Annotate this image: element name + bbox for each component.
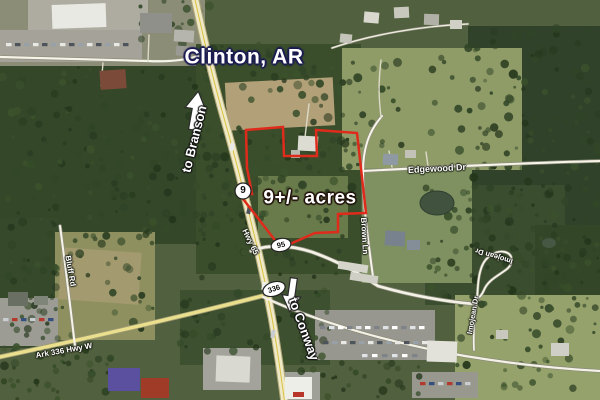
shield-ar9 bbox=[235, 183, 251, 199]
satellite-imagery bbox=[0, 0, 600, 400]
aerial-map-canvas[interactable]: Clinton, AR 9+/- acres to Branson to Con… bbox=[0, 0, 600, 400]
